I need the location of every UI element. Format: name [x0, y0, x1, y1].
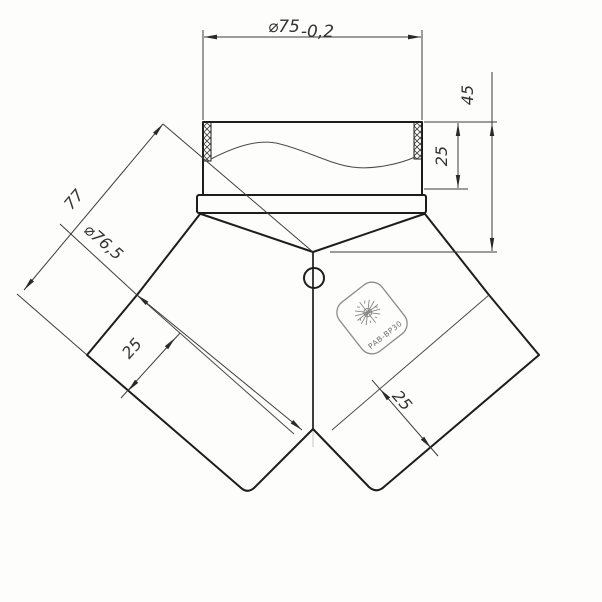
inspection-stamp: РАВ-ВР30: [332, 277, 413, 359]
shoulder-left: [201, 214, 313, 252]
dim-top-diameter-label: ⌀75-0,2: [268, 17, 334, 42]
technical-drawing: ⌀75-0,2 25 45 77 ⌀76,5 25: [0, 0, 602, 602]
dim-right-branch-crimp: 25: [372, 380, 438, 456]
collar-crimp-band-right: [414, 122, 422, 159]
dim-left-branch-crimp-label: 25: [118, 334, 146, 362]
fitting-outline: [87, 122, 539, 491]
shoulder-right: [313, 214, 424, 252]
dim-branch-diameter-label: ⌀76,5: [80, 220, 127, 264]
branch-left-mouth: [87, 355, 313, 491]
branch-right-mouth: [313, 355, 539, 490]
stamp-emblem-icon: [349, 294, 385, 330]
dim-right-branch-crimp-label: 25: [388, 386, 416, 414]
dim-collar-crimp-label: 25: [432, 146, 451, 166]
drawing-sheet: ⌀75-0,2 25 45 77 ⌀76,5 25: [0, 0, 602, 602]
dim-collar-total-label: 45: [458, 85, 477, 105]
dim-collar-crimp: 25: [424, 122, 497, 189]
dim-left-branch-crimp: 25: [118, 333, 180, 398]
branch-left-crimp-line: [137, 295, 294, 434]
dim-branch-length-label: 77: [60, 185, 88, 213]
flange: [197, 195, 426, 213]
collar: [203, 122, 422, 195]
branch-right-outer-edge: [425, 214, 539, 355]
break-line: [211, 142, 415, 168]
crotch-circle: [304, 268, 324, 288]
collar-crimp-band-left: [203, 122, 211, 161]
branch-right-crimp-line: [332, 295, 489, 430]
dim-branch-diameter: ⌀76,5: [60, 220, 302, 430]
dim-collar-total: 45: [330, 72, 497, 252]
dim-top-diameter: ⌀75-0,2: [203, 17, 422, 120]
